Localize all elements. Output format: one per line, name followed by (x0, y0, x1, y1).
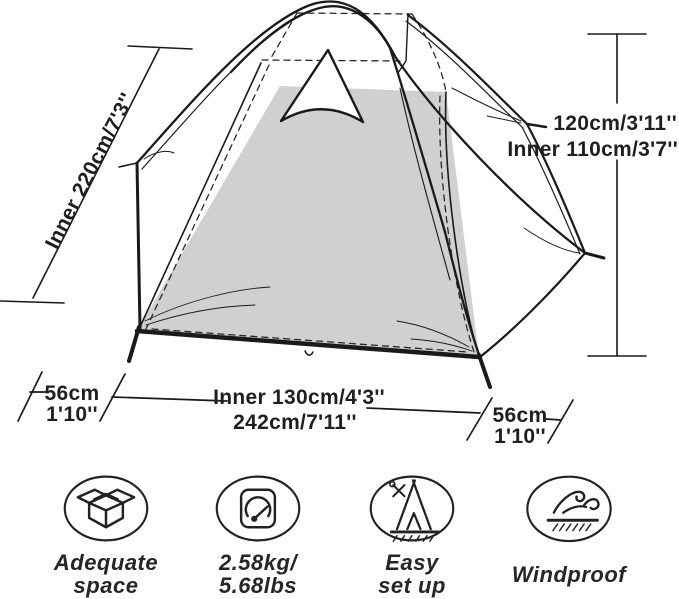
tent-diagram: Inner 220cm/7'3'' 120cm/3'11'' Inner 110… (0, 0, 679, 465)
feature-label: Adequate space (54, 551, 158, 597)
feature-weight: 2.58kg/ 5.68lbs (183, 471, 333, 597)
ridge-dim-bottom-cap (0, 301, 64, 303)
height-dimension-label: 120cm/3'11'' (553, 112, 677, 135)
ridge-dimension-label: Inner 220cm/7'3'' (41, 89, 140, 253)
tools-glyph (390, 482, 405, 497)
tent-setup-icon (364, 471, 460, 546)
total-width-label: 242cm/7'11'' (233, 411, 357, 434)
feature-easy-setup: Easy set up (337, 471, 487, 597)
inner-height-dimension-label: Inner 110cm/3'7'' (507, 138, 678, 161)
feature-adequate-space: Adequate space (31, 471, 181, 597)
feature-windproof: Windproof (494, 471, 644, 597)
open-box-icon (58, 471, 154, 546)
feature-label: Easy set up (378, 551, 446, 597)
feature-label: Windproof (512, 552, 626, 597)
right-vestibule-cm-label: 56cm (493, 404, 548, 427)
right-vestibule-ft-label: 1'10'' (494, 425, 546, 448)
scale-icon (210, 471, 306, 546)
inner-width-label: Inner 130cm/4'3'' (213, 386, 385, 409)
left-vestibule-ft-label: 1'10'' (46, 403, 98, 426)
left-vestibule-cm-label: 56cm (45, 382, 100, 405)
windproof-icon (521, 471, 617, 547)
feature-label: 2.58kg/ 5.68lbs (219, 551, 297, 597)
ridge-dim-top-cap (128, 46, 192, 49)
product-diagram-page: Inner 220cm/7'3'' 120cm/3'11'' Inner 110… (0, 0, 679, 599)
